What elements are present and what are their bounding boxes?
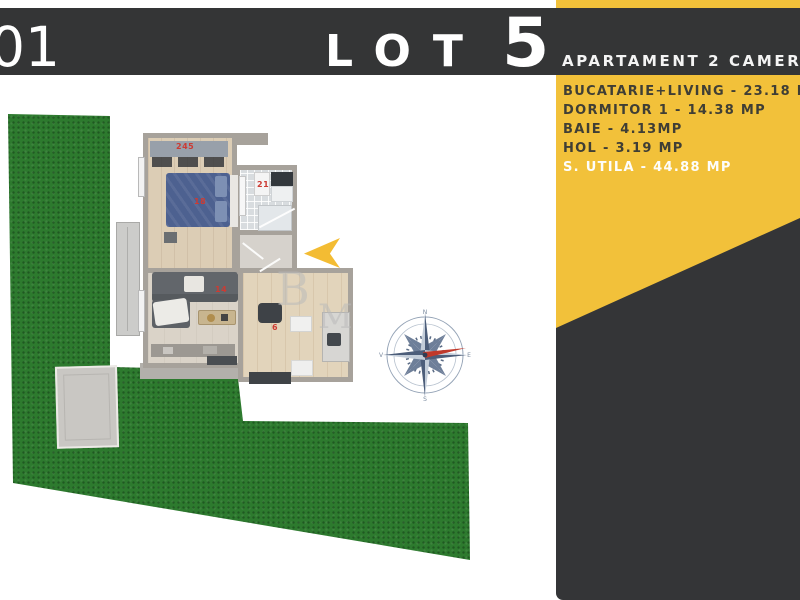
side-driveway bbox=[116, 222, 140, 336]
compass-south-label: S bbox=[423, 396, 427, 402]
shower-glass bbox=[259, 208, 295, 229]
presentation-page: 245 18 21 14 6 B M N E S bbox=[0, 0, 800, 600]
bath-vanity-counter bbox=[271, 172, 293, 186]
sofa-blanket bbox=[152, 298, 189, 326]
patio-inner-border bbox=[63, 373, 111, 440]
compass-west-label: V bbox=[379, 352, 384, 359]
console-object bbox=[203, 346, 217, 354]
bed-bench bbox=[230, 175, 238, 227]
console-object bbox=[163, 347, 173, 354]
bedroom-window bbox=[138, 157, 145, 197]
room-area-item: BUCATARIE+LIVING - 23.18 MP bbox=[563, 82, 800, 101]
room-area-list: BUCATARIE+LIVING - 23.18 MP DORMITOR 1 -… bbox=[563, 82, 800, 177]
room-area-item: HOL - 3.19 MP bbox=[563, 139, 800, 158]
apartment-subtitle: APARTAMENT 2 CAMERE bbox=[562, 52, 800, 70]
pillow bbox=[215, 201, 227, 222]
watermark-letter: M bbox=[318, 300, 353, 334]
room-area-item: DORMITOR 1 - 14.38 MP bbox=[563, 101, 800, 120]
room-area-item: BAIE - 4.13MP bbox=[563, 120, 800, 139]
compass-east-label: E bbox=[467, 352, 471, 359]
top-wall-extension bbox=[232, 133, 268, 145]
nightstand bbox=[164, 232, 177, 243]
unit-number: 01 bbox=[0, 20, 60, 75]
lot-number: 5 bbox=[502, 10, 549, 78]
header-bar: 01 LOT 5 APARTAMENT 2 CAMERE bbox=[0, 8, 800, 75]
lot-label: LOT bbox=[325, 30, 485, 74]
bath-radiator bbox=[239, 176, 246, 216]
compass-rose-icon: N E S V bbox=[378, 308, 472, 402]
room-area-item-total: S. UTILA - 44.88 MP bbox=[563, 158, 800, 177]
bath-vanity bbox=[271, 186, 293, 202]
fridge bbox=[290, 316, 312, 332]
dim-label-bed: 18 bbox=[194, 198, 206, 206]
coffee-table bbox=[198, 310, 236, 325]
dim-label-bath: 21 bbox=[257, 181, 269, 189]
living-window bbox=[138, 290, 145, 332]
dim-label-dining: 6 bbox=[272, 324, 278, 332]
table-deco bbox=[221, 314, 228, 321]
info-side-panel: BUCATARIE+LIVING - 23.18 MP DORMITOR 1 -… bbox=[556, 0, 800, 600]
door-mat bbox=[207, 356, 237, 365]
watermark-letter: B bbox=[276, 266, 310, 312]
kitchen-cabinet-band bbox=[249, 372, 291, 384]
dim-label-wardrobe: 245 bbox=[176, 143, 194, 151]
pillow bbox=[215, 176, 227, 197]
shower bbox=[258, 205, 292, 231]
dim-label-sofa: 14 bbox=[215, 286, 227, 294]
kitchen-island bbox=[291, 360, 313, 376]
wardrobe-hangers bbox=[152, 157, 228, 167]
table-tray bbox=[207, 314, 215, 322]
sofa-cushion bbox=[184, 276, 204, 292]
patio-terrace bbox=[55, 365, 119, 449]
compass-north-label: N bbox=[423, 309, 428, 316]
driveway-line bbox=[127, 227, 128, 331]
